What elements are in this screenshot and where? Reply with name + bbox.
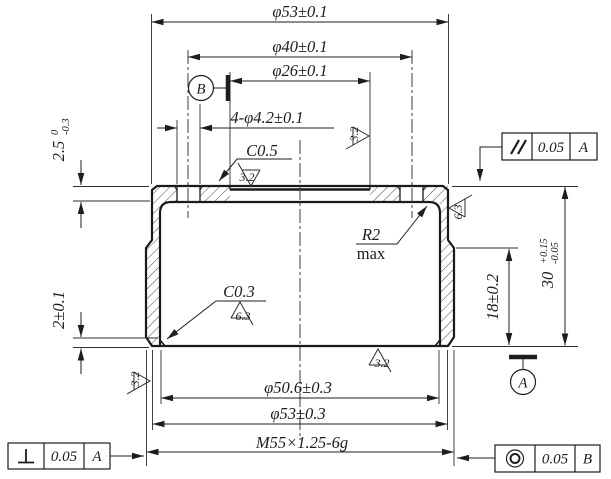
concentricity-tolerance: 0.05 <box>542 452 569 468</box>
roughness-value-right-wall: 6.3 <box>451 205 465 220</box>
datum-b-symbol: B <box>189 75 229 101</box>
dim-recess-diameter: φ26±0.1 <box>272 61 327 80</box>
dim-bore-diameter: φ50.6±0.3 <box>264 378 332 397</box>
parallelism-tolerance: 0.05 <box>538 140 565 156</box>
dim-outer-diameter-top: φ53±0.1 <box>272 2 327 21</box>
hatch-top-right-inner <box>370 186 400 202</box>
dim-overall-height: 30 +0.15 -0.05 <box>538 239 561 290</box>
dim-thread-spec: M55×1.25-6g <box>255 433 348 452</box>
roughness-value-top-face: 3.2 <box>239 170 255 184</box>
dim-overall-height-lower-tol: -0.05 <box>550 242 561 264</box>
dim-outer-diameter-bottom: φ53±0.3 <box>270 404 325 423</box>
svg-text:30: 30 <box>538 271 557 289</box>
dimension-texts: φ53±0.1 φ40±0.1 φ26±0.1 4-φ4.2±0.1 C0.5 … <box>49 2 561 452</box>
hatch-top-left-inner <box>200 186 230 202</box>
dim-top-wall-upper-tol: 0 <box>50 129 61 135</box>
roughness-value-recess: 3.2 <box>347 127 361 143</box>
datum-b-label: B <box>196 82 205 98</box>
roughness-value-bottom-face: 3.2 <box>374 356 390 370</box>
datum-a-label: A <box>517 376 528 392</box>
dim-thread-depth: 18±0.2 <box>483 274 502 320</box>
dim-lip-thickness: 2±0.1 <box>49 291 68 329</box>
dim-inner-radius-qualifier: max <box>357 244 386 263</box>
perpendicularity-tolerance: 0.05 <box>51 449 78 465</box>
dim-bolt-circle: φ40±0.1 <box>272 37 327 56</box>
dim-top-chamfer: C0.5 <box>246 141 278 160</box>
dim-top-wall-lower-tol: -0.3 <box>61 118 72 135</box>
parallelism-frame: 0.05 A <box>502 133 597 160</box>
roughness-value-inner-chamfer: 6.3 <box>236 309 251 323</box>
roughness-value-thread-surface: 3.2 <box>128 372 142 388</box>
dim-overall-height-upper-tol: +0.15 <box>539 239 550 264</box>
concentricity-datum: B <box>583 452 592 468</box>
parallelism-datum: A <box>578 140 589 156</box>
chamfer-inner-leader <box>167 301 266 339</box>
section-view-drawing: B A 0.05 A 0.05 A 0.05 B <box>0 0 611 479</box>
perpendicularity-frame: 0.05 A <box>8 443 110 469</box>
svg-text:2.5: 2.5 <box>49 141 68 162</box>
dim-inner-chamfer: C0.3 <box>223 282 255 301</box>
engineering-drawing-canvas: B A 0.05 A 0.05 A 0.05 B <box>0 0 611 479</box>
perpendicularity-datum: A <box>91 449 102 465</box>
concentricity-frame: 0.05 B <box>495 445 600 472</box>
dim-inner-radius: R2 <box>361 225 380 244</box>
dim-top-wall-thickness: 2.5 0 -0.3 <box>49 118 72 161</box>
datum-a-symbol: A <box>509 357 537 395</box>
parallelism-leader <box>480 147 502 181</box>
dim-hole-pattern: 4-φ4.2±0.1 <box>230 108 303 127</box>
